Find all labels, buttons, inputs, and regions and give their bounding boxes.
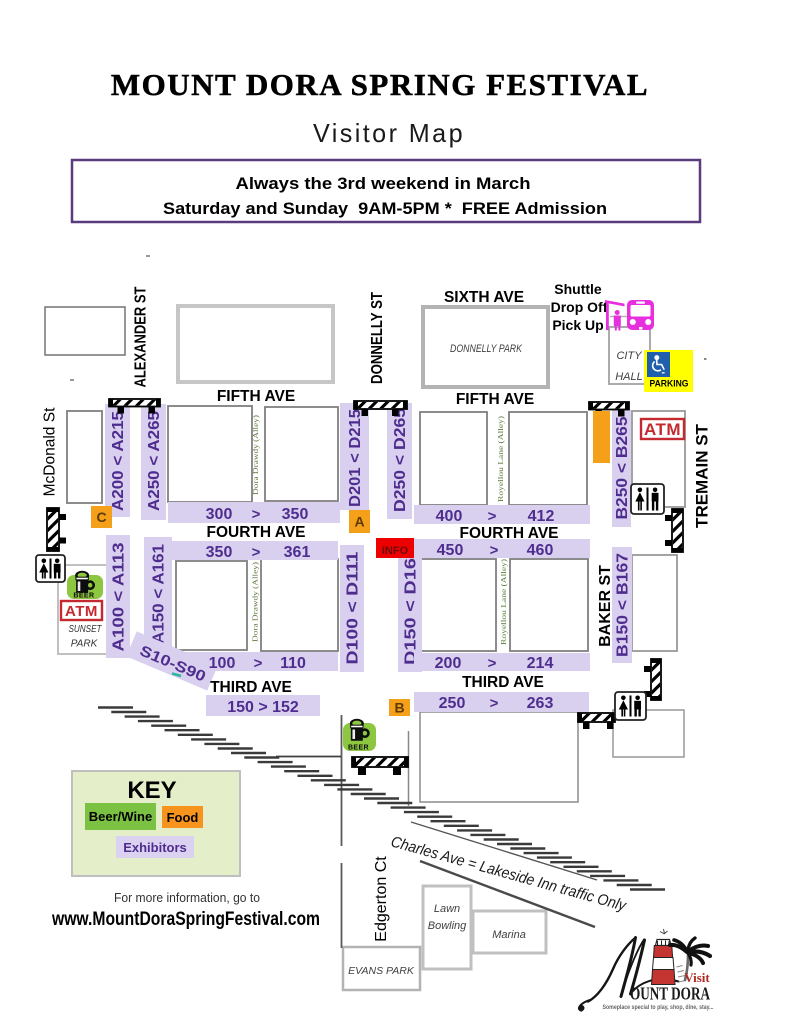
svg-text:FIFTH AVE: FIFTH AVE (456, 391, 534, 408)
svg-text:B150 < B167: B150 < B167 (615, 553, 632, 657)
svg-text:>: > (488, 655, 497, 672)
svg-text:B250 < B265: B250 < B265 (614, 416, 631, 519)
svg-text:361: 361 (284, 544, 311, 561)
svg-text:150 > 152: 150 > 152 (227, 699, 299, 716)
svg-text:FOURTH AVE: FOURTH AVE (206, 524, 305, 541)
svg-text:DONNELLY ST: DONNELLY ST (369, 292, 386, 384)
svg-text:Royellou Lane (Alley): Royellou Lane (Alley) (499, 558, 508, 645)
svg-text:PARK: PARK (71, 639, 99, 650)
svg-text:FOURTH AVE: FOURTH AVE (459, 525, 558, 542)
svg-text:TREMAIN ST: TREMAIN ST (693, 423, 712, 528)
svg-text:D250 < D265: D250 < D265 (392, 408, 409, 512)
svg-text:For more information, go to: For more information, go to (114, 890, 260, 905)
svg-text:ALEXANDER ST: ALEXANDER ST (133, 286, 150, 387)
svg-text:>: > (490, 695, 499, 712)
svg-text:Pick Up: Pick Up (552, 317, 603, 333)
svg-text:HALL: HALL (615, 371, 643, 383)
svg-text:www.MountDoraSpringFestival.co: www.MountDoraSpringFestival.com (51, 909, 320, 930)
svg-text:Beer/Wine: Beer/Wine (89, 809, 152, 824)
svg-text:Food: Food (167, 810, 199, 825)
svg-text:A: A (354, 514, 364, 530)
svg-text:PARKING: PARKING (650, 379, 689, 389)
svg-text:>: > (252, 506, 261, 523)
svg-text:Drop Off: Drop Off (551, 299, 608, 315)
svg-text:>: > (490, 542, 499, 559)
svg-text:Dora Drawdy (Alley): Dora Drawdy (Alley) (251, 414, 260, 495)
svg-text:THIRD AVE: THIRD AVE (462, 674, 544, 691)
svg-text:460: 460 (527, 542, 554, 559)
svg-text:100: 100 (209, 655, 236, 672)
svg-text:D201 < D215: D201 < D215 (347, 409, 364, 507)
svg-text:A250 < A265: A250 < A265 (146, 411, 163, 511)
svg-text:BAKER ST: BAKER ST (597, 565, 614, 647)
svg-text:KEY: KEY (127, 777, 176, 804)
svg-text:400: 400 (436, 508, 463, 525)
svg-text:D100 < D111: D100 < D111 (345, 551, 362, 664)
svg-text:EVANS PARK: EVANS PARK (348, 965, 415, 977)
svg-text:Bowling: Bowling (428, 920, 467, 932)
svg-text:ATM: ATM (65, 603, 98, 620)
svg-text:214: 214 (527, 655, 554, 672)
svg-text:Lawn: Lawn (434, 903, 460, 915)
svg-text:350: 350 (282, 506, 309, 523)
svg-text:300: 300 (206, 506, 233, 523)
svg-text:SUNSET: SUNSET (69, 624, 103, 635)
svg-text:FIFTH AVE: FIFTH AVE (217, 388, 295, 405)
svg-text:B: B (394, 700, 404, 716)
svg-text:Saturday and Sunday 9AM-5PM *: Saturday and Sunday 9AM-5PM * FREE Admis… (163, 199, 607, 218)
svg-text:CITY: CITY (616, 350, 642, 362)
svg-text:250: 250 (439, 695, 466, 712)
svg-text:Someplace special to play, sho: Someplace special to play, shop, dine, s… (603, 1005, 714, 1011)
svg-text:200: 200 (435, 655, 462, 672)
svg-text:BEER: BEER (348, 745, 369, 752)
svg-text:A200 < A215: A200 < A215 (110, 411, 127, 511)
svg-text:Shuttle: Shuttle (554, 281, 602, 297)
svg-text:MOUNT DORA SPRING FESTIVAL: MOUNT DORA SPRING FESTIVAL (111, 67, 649, 102)
svg-text:C: C (96, 509, 106, 525)
svg-text:>: > (488, 508, 497, 525)
svg-text:Dora Drawdy (Alley): Dora Drawdy (Alley) (251, 561, 260, 642)
svg-text:>: > (254, 655, 263, 672)
svg-text:110: 110 (280, 655, 306, 672)
svg-text:McDonald St: McDonald St (42, 407, 59, 496)
svg-text:SIXTH AVE: SIXTH AVE (444, 289, 524, 306)
svg-text:D150 < D163: D150 < D163 (403, 547, 420, 665)
svg-text:INFO: INFO (382, 545, 409, 557)
svg-text:ATM: ATM (644, 420, 681, 439)
svg-text:>: > (252, 544, 261, 561)
svg-text:Visitor Map: Visitor Map (313, 118, 465, 148)
svg-text:BEER: BEER (73, 593, 94, 600)
svg-text:Edgerton Ct: Edgerton Ct (373, 856, 390, 942)
svg-text:A100 < A113: A100 < A113 (111, 542, 128, 651)
svg-text:450: 450 (437, 542, 464, 559)
svg-text:263: 263 (527, 695, 554, 712)
svg-text:A150 < A161: A150 < A161 (151, 544, 168, 644)
svg-text:Always the 3rd weekend in Marc: Always the 3rd weekend in March (236, 174, 531, 193)
svg-text:412: 412 (528, 508, 555, 525)
svg-text:THIRD AVE: THIRD AVE (210, 679, 292, 696)
svg-text:Royellou Lane (Alley): Royellou Lane (Alley) (496, 415, 505, 502)
svg-text:OUNT DORA: OUNT DORA (630, 984, 710, 1004)
svg-text:DONNELLY PARK: DONNELLY PARK (450, 343, 523, 355)
svg-text:350: 350 (206, 544, 233, 561)
svg-text:Marina: Marina (492, 929, 526, 941)
svg-text:Exhibitors: Exhibitors (123, 840, 187, 855)
